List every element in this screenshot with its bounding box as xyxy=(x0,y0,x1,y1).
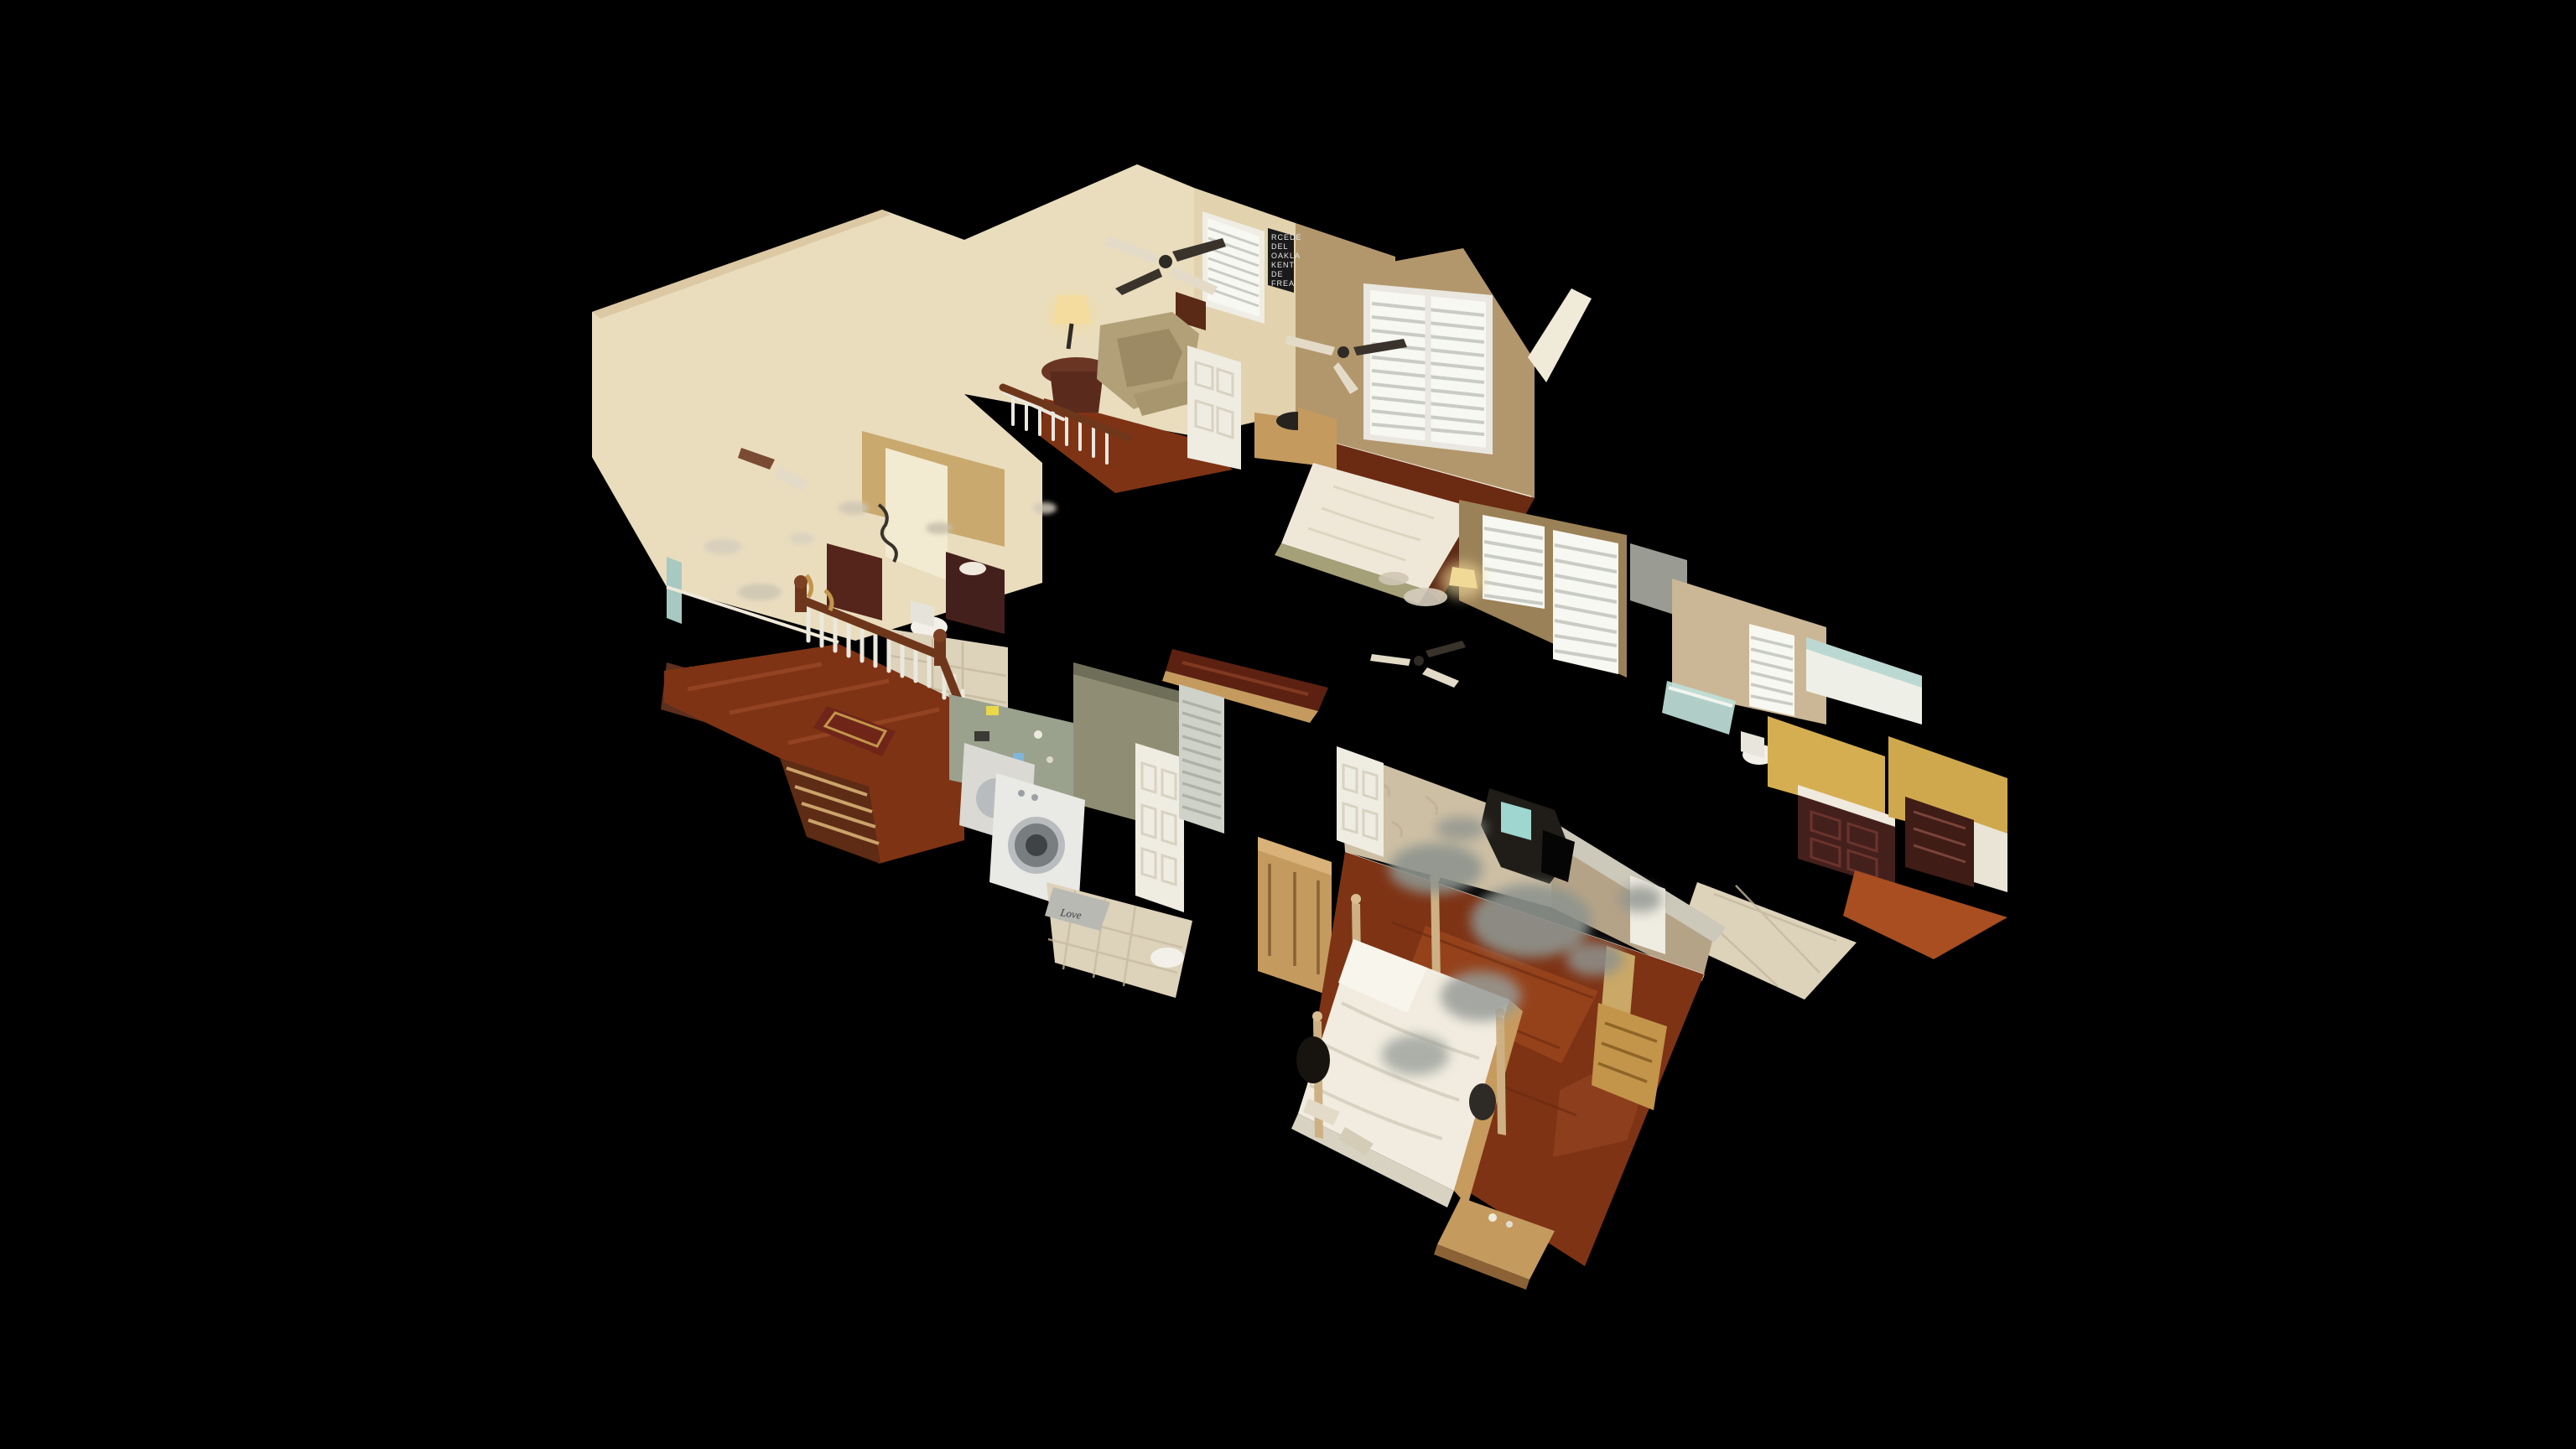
sign-line: DE xyxy=(1271,270,1284,278)
fan-hub xyxy=(1337,346,1349,358)
sign-line: KENT xyxy=(1271,261,1295,269)
dollhouse-3d-view[interactable]: RCEDE DEL OAKLA KENT DE FREA xyxy=(0,0,2576,1449)
clutter-item xyxy=(1034,730,1042,739)
debris xyxy=(839,501,869,515)
table-lamp xyxy=(1449,567,1478,589)
dark-chair xyxy=(1296,1036,1330,1083)
washer-door-center xyxy=(1026,834,1047,856)
sign-line: FREA xyxy=(1271,279,1295,288)
clutter-item xyxy=(1046,756,1053,763)
scan-debris xyxy=(1404,588,1447,606)
scan-debris xyxy=(1379,572,1409,585)
clutter-item xyxy=(986,706,999,715)
sign-line: DEL xyxy=(1271,242,1289,251)
scan-hole xyxy=(1441,971,1521,1021)
newel-cap xyxy=(794,575,808,589)
washer-knob xyxy=(1018,790,1025,797)
fan-hub xyxy=(1159,255,1172,268)
bed-post xyxy=(1496,1016,1506,1135)
black-background xyxy=(0,0,2576,1449)
washer-knob xyxy=(1031,794,1038,801)
scan-hole xyxy=(1471,884,1592,958)
post-finial xyxy=(1351,894,1361,904)
nightstand-lamp xyxy=(1469,1083,1496,1120)
scan-hole xyxy=(1389,844,1483,894)
newel-cap xyxy=(933,629,947,642)
closet-door-white xyxy=(1974,822,2007,892)
toilet xyxy=(1150,948,1184,968)
nightstand-item xyxy=(1506,1221,1513,1228)
bed-post xyxy=(1431,882,1441,981)
debris xyxy=(926,522,953,534)
sign-line: RCEDE xyxy=(1271,233,1302,241)
scan-hole xyxy=(1618,885,1662,912)
nightstand-item xyxy=(1488,1213,1497,1222)
post-finial xyxy=(1312,1011,1322,1021)
debris xyxy=(790,532,813,544)
debris xyxy=(1033,502,1057,514)
debris xyxy=(738,584,782,600)
clutter-item xyxy=(974,731,989,741)
sign-line: OAKLA xyxy=(1271,252,1301,260)
scan-hole xyxy=(1436,817,1486,840)
loft-lamp-shade xyxy=(1052,295,1092,324)
fan-hub xyxy=(1414,656,1424,666)
scan-hole xyxy=(1566,943,1623,976)
debris xyxy=(704,539,741,554)
scan-hole xyxy=(1382,1035,1449,1075)
sink xyxy=(959,562,986,575)
